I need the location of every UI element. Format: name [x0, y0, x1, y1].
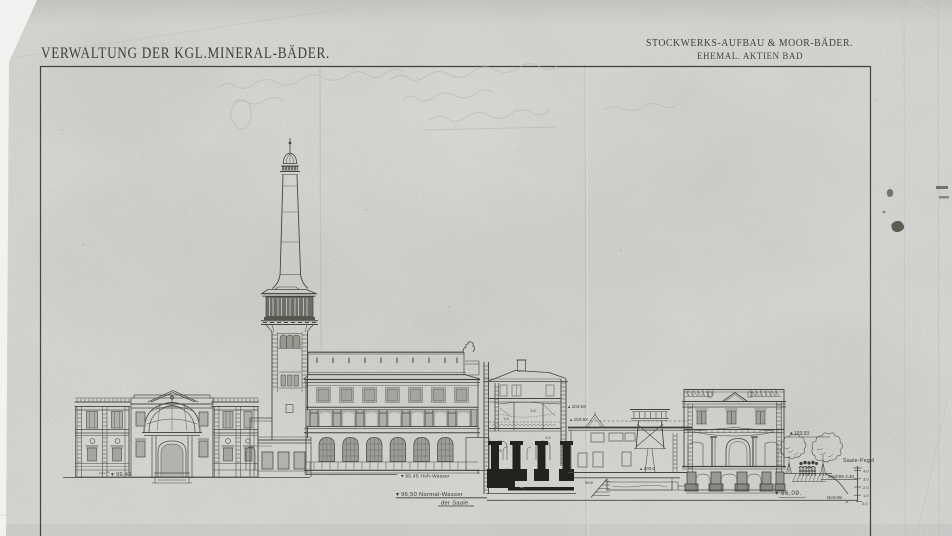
svg-text:VERWALTUNG DER KGL.MINERAL-BÄD: VERWALTUNG DER KGL.MINERAL-BÄDER.	[41, 45, 330, 62]
svg-text:99,8: 99,8	[585, 480, 594, 485]
svg-text:Saale-Pegel: Saale-Pegel	[843, 458, 875, 464]
svg-text:EHEMAL. AKTIEN BAD: EHEMAL. AKTIEN BAD	[697, 51, 803, 61]
svg-text:▾ 96,09.: ▾ 96,09.	[775, 490, 802, 497]
svg-text:1.6: 1.6	[530, 408, 536, 413]
svg-text:▾ 96,50 Normal-Wasser: ▾ 96,50 Normal-Wasser	[396, 492, 463, 498]
svg-text:▴ 100,0: ▴ 100,0	[640, 466, 656, 471]
svg-text:▴ 103,93: ▴ 103,93	[570, 417, 588, 422]
svg-text:▾ 99,49: ▾ 99,49	[111, 472, 132, 478]
svg-text:1,0: 1,0	[863, 493, 869, 498]
svg-text:STOCKWERKS-AUFBAU & MOOR-BÄDER: STOCKWERKS-AUFBAU & MOOR-BÄDER.	[646, 37, 853, 49]
svg-text:4,0: 4,0	[863, 469, 869, 474]
svg-text:der Saale: der Saale	[441, 501, 469, 507]
svg-text:1.5: 1.5	[503, 416, 509, 421]
svg-text:3,0: 3,0	[863, 477, 869, 482]
svg-text:0,0: 0,0	[862, 501, 868, 506]
svg-text:NormW.: NormW.	[827, 495, 843, 500]
svg-text:1.5: 1.5	[545, 435, 551, 440]
svg-text:1.03: 1.03	[494, 448, 503, 453]
svg-text:MachtW 2,48: MachtW 2,48	[828, 474, 854, 479]
svg-text:▾ 95,45 Hoh-Wasser: ▾ 95,45 Hoh-Wasser	[401, 474, 450, 480]
svg-text:▴ 104,93: ▴ 104,93	[568, 404, 586, 409]
svg-text:2,0: 2,0	[863, 485, 869, 490]
